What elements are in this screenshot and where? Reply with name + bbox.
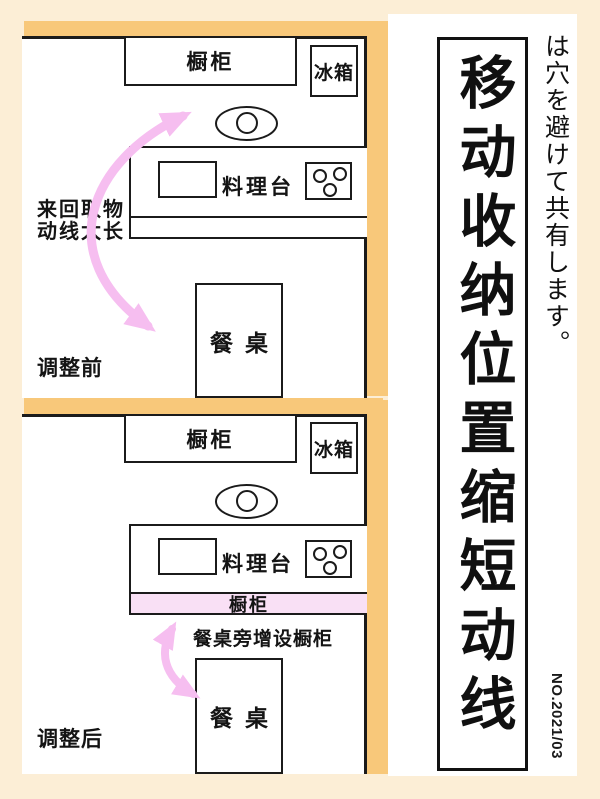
- burner-icon: [333, 545, 347, 559]
- stove-after-icon: [305, 540, 352, 578]
- burner-icon: [323, 183, 337, 197]
- dining-table-before-label: 餐桌: [198, 324, 280, 358]
- section-label-after: 调整后: [37, 723, 103, 753]
- dining-table-before: 餐桌: [195, 283, 283, 398]
- burner-icon: [313, 547, 327, 561]
- top-orange-strip-after: [24, 398, 383, 414]
- fridge-after-label: 冰箱: [314, 435, 354, 462]
- counter-before-label: 料理台: [222, 171, 294, 201]
- dining-table-after-label: 餐桌: [198, 699, 280, 733]
- title-box: 移动收纳位置缩短动线: [437, 37, 528, 771]
- right-orange-strip-lower: [367, 400, 388, 774]
- counter-before-front-band: [129, 218, 367, 239]
- burner-icon: [313, 169, 327, 183]
- dining-table-after: 餐桌: [195, 658, 283, 774]
- sink-after-drain-icon: [236, 490, 258, 512]
- fridge-before-label: 冰箱: [314, 58, 354, 85]
- cupboard-after: 橱柜: [124, 414, 297, 463]
- after-note: 餐桌旁增设橱柜: [193, 624, 333, 651]
- new-cupboard-after: 橱柜: [129, 594, 367, 615]
- cupboard-before: 橱柜: [124, 36, 297, 86]
- cupboard-after-label: 橱柜: [187, 424, 235, 454]
- issue-number: NO.2021/03: [549, 667, 565, 765]
- section-label-before: 调整前: [37, 352, 103, 382]
- burner-icon: [323, 561, 337, 575]
- new-cupboard-after-label: 橱柜: [229, 591, 269, 617]
- page-title: 移动收纳位置缩短动线: [454, 53, 511, 743]
- flow-note-line2: 动线太长: [37, 215, 125, 244]
- sink-before-drain-icon: [236, 112, 258, 134]
- counter-before-board: [158, 161, 217, 198]
- stove-before-icon: [305, 162, 352, 200]
- fridge-after: 冰箱: [310, 422, 358, 474]
- counter-after-label: 料理台: [222, 548, 294, 578]
- cupboard-before-label: 橱柜: [187, 46, 235, 76]
- fridge-before: 冰箱: [310, 45, 358, 97]
- vertical-note: は穴を避けて共有します。: [541, 33, 569, 357]
- infographic-page: 橱柜 冰箱 料理台 餐桌 来回取物 动线太长 调整前 橱柜 冰箱 料理台 橱柜 …: [0, 0, 600, 799]
- burner-icon: [333, 167, 347, 181]
- counter-after-board: [158, 538, 217, 575]
- top-orange-strip-before: [24, 21, 383, 36]
- right-orange-strip-upper: [367, 21, 388, 396]
